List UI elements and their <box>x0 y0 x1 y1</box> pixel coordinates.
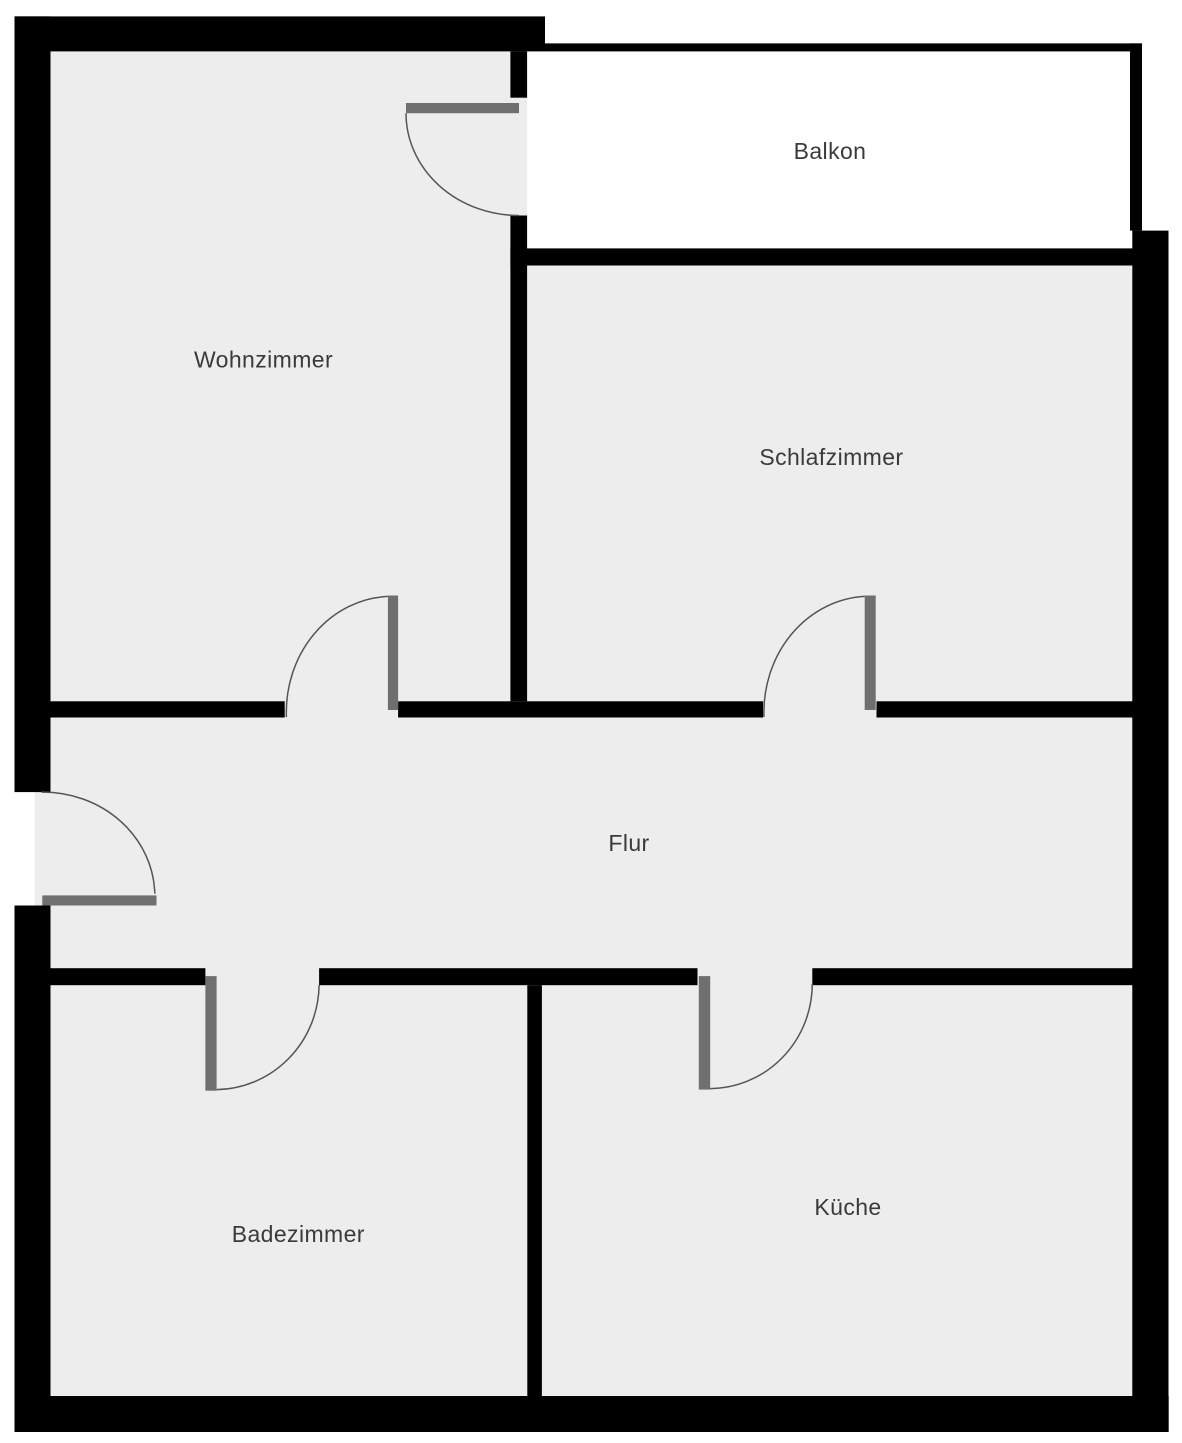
svg-text:Schlafzimmer: Schlafzimmer <box>759 444 903 470</box>
svg-text:Balkon: Balkon <box>794 138 867 164</box>
svg-text:Flur: Flur <box>608 830 649 856</box>
svg-text:Küche: Küche <box>814 1194 881 1220</box>
svg-text:Wohnzimmer: Wohnzimmer <box>194 346 333 372</box>
svg-text:Badezimmer: Badezimmer <box>232 1221 365 1247</box>
